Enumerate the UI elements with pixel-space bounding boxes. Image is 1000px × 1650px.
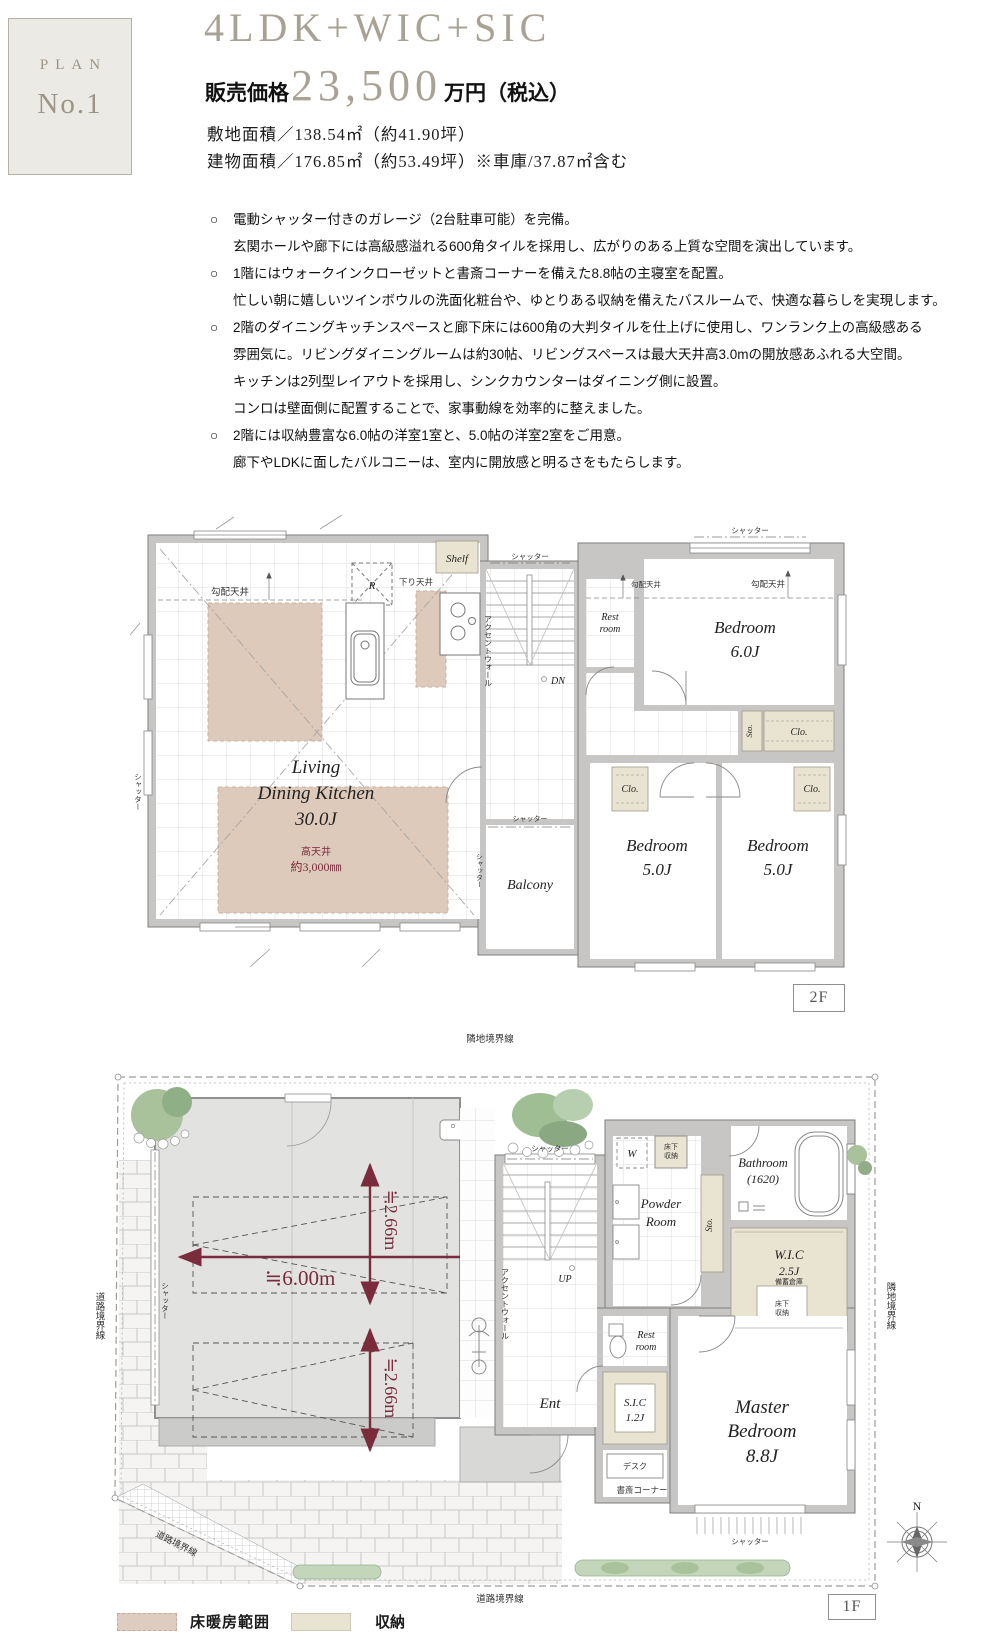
entrance-label: Ent: [539, 1396, 562, 1412]
closet-label: Clo.: [622, 784, 639, 795]
living-label-2: Dining Kitchen: [257, 783, 375, 804]
compass-icon: [887, 1512, 947, 1572]
feature-line: キッチンは2列型レイアウトを採用し、シンクカウンターはダイニング側に設置。: [210, 368, 950, 395]
bedroom5-right-label: Bedroom: [747, 836, 809, 855]
bullet-icon: ○: [210, 422, 233, 449]
bullet-icon: ○: [210, 260, 233, 287]
sic-label-2: 1.2J: [626, 1412, 646, 1424]
floor-plan-2f: 勾配天井 Shelf R 下り天井 シャッター シャッター シャッター シャッタ…: [130, 515, 850, 985]
feature-text: 忙しい朝に嬉しいツインボウルの洗面化粧台や、ゆとりある収納を備えたバスルームで、…: [233, 293, 946, 308]
restroom-label-2: room: [600, 624, 621, 635]
price-label: 販売価格: [205, 77, 289, 107]
underfloor-storage-label: 床下: [664, 1142, 678, 1151]
washer-label: W: [627, 1148, 637, 1160]
shutter-label-stair: シャッター: [531, 1144, 569, 1153]
feature-text: 2階には収納豊富な6.0帖の洋室1室と、5.0帖の洋室2室をご用意。: [233, 428, 630, 443]
restroom-label-1f-1: Rest: [636, 1330, 654, 1341]
plan-sheet: PLAN No.1 4LDK+WIC+SIC 販売価格 23,500 万円（税込…: [0, 0, 1000, 1650]
storage-swatch: [291, 1613, 351, 1631]
feature-list: ○電動シャッター付きのガレージ（2台駐車可能）を完備。 玄関ホールや廊下には高級…: [210, 206, 950, 476]
boundary-label-bottom: 道路境界線: [476, 1593, 524, 1605]
feature-text: 雰囲気に。リビングダイニングルームは約30帖、リビングスペースは最大天井高3.0…: [233, 347, 911, 362]
living-size-label: 30.0J: [294, 809, 338, 830]
high-ceiling-label-1: 高天井: [301, 845, 331, 858]
bathroom-label-2: (1620): [747, 1172, 779, 1186]
desk-label: デスク: [623, 1461, 647, 1471]
feature-line: ○1階にはウォークインクローゼットと書斎コーナーを備えた8.8帖の主寝室を配置。: [210, 260, 950, 287]
feature-line: 忙しい朝に嬉しいツインボウルの洗面化粧台や、ゆとりある収納を備えたバスルームで、…: [210, 287, 950, 314]
building-area: 建物面積／176.85㎡（約53.49坪）※車庫/37.87㎡含む: [207, 148, 628, 172]
feature-text: キッチンは2列型レイアウトを採用し、シンクカウンターはダイニング側に設置。: [233, 374, 727, 389]
high-ceiling-label-2: 約3,000㎜: [290, 859, 341, 874]
master-size-label: 8.8J: [746, 1446, 780, 1467]
lowered-ceiling-label: 下り天井: [399, 577, 433, 587]
slope-ceiling-label-ldk: 勾配天井: [211, 586, 249, 598]
price-value: 23,500: [291, 60, 442, 111]
paving-bottom: [207, 1480, 562, 1584]
up-label: UP: [558, 1274, 571, 1285]
floor-tag-1f: 1F: [828, 1594, 876, 1620]
dim-depth-label: ≒2.66m: [381, 1190, 401, 1251]
bedroom6-label: Bedroom: [714, 618, 776, 637]
bullet-icon: ○: [210, 206, 233, 233]
master-label-1: Master: [734, 1397, 789, 1418]
feature-line: コンロは壁面側に配置することで、家事動線を効率的に整えました。: [210, 395, 950, 422]
plan-label: PLAN: [9, 57, 131, 74]
price-unit: 万円（税込）: [444, 77, 570, 107]
floor-heating-swatch: [117, 1613, 177, 1631]
bedroom5-left-label: Bedroom: [626, 836, 688, 855]
living-label-1: Living: [291, 757, 341, 778]
price-row: 販売価格 23,500 万円（税込）: [205, 60, 570, 111]
closet-label: Clo.: [804, 784, 821, 795]
fridge-label: R: [368, 580, 376, 592]
floor-plan-1f: ≒6.00m ≒2.66m ≒2.66m: [95, 1020, 955, 1620]
master-label-2: Bedroom: [728, 1421, 797, 1442]
storage-label: Sto.: [744, 725, 754, 738]
feature-text: コンロは壁面側に配置することで、家事動線を効率的に整えました。: [233, 401, 651, 416]
shutter-label: シャッター: [511, 552, 549, 561]
legend: 床暖房範囲 収納: [117, 1611, 405, 1632]
page-title: 4LDK+WIC+SIC: [204, 4, 551, 51]
shutter-label: シャッター: [134, 773, 143, 811]
sic-label-1: S.I.C: [624, 1397, 647, 1409]
stockpile-label: 備蓄倉庫: [775, 1277, 803, 1286]
feature-line: 雰囲気に。リビングダイニングルームは約30帖、リビングスペースは最大天井高3.0…: [210, 341, 950, 368]
boundary-label-right: 隣地境界線: [885, 1281, 897, 1329]
bullet-icon: ○: [210, 314, 233, 341]
shutter-label: シャッター: [476, 853, 484, 888]
north-label: N: [913, 1499, 922, 1513]
boundary-label-top: 隣地境界線: [466, 1033, 514, 1045]
dim-width-label: ≒6.00m: [265, 1266, 336, 1290]
feature-text: 電動シャッター付きのガレージ（2台駐車可能）を完備。: [233, 212, 578, 227]
wic-label-1: W.I.C: [774, 1247, 803, 1262]
wic-label-2: 2.5J: [779, 1264, 800, 1278]
underfloor-storage-wic: 床下: [775, 1299, 789, 1308]
restroom-label-1f-2: room: [636, 1342, 657, 1353]
land-area: 敷地面積／138.54㎡（約41.90坪）: [207, 121, 476, 145]
side-path: [460, 1108, 495, 1418]
powder-label-2: Room: [645, 1214, 676, 1229]
feature-line: ○2階のダイニングキッチンスペースと廊下床には600角の大判タイルを仕上げに使用…: [210, 314, 950, 341]
deck-lines: [697, 1517, 801, 1534]
shutter-label-master: シャッター: [731, 1537, 769, 1546]
shutter-label: シャッター: [731, 526, 769, 535]
dim-depth-label: ≒2.66m: [381, 1358, 401, 1419]
slope-ceiling-label-rest: 勾配天井: [631, 579, 661, 589]
feature-line: ○2階には収納豊富な6.0帖の洋室1室と、5.0帖の洋室2室をご用意。: [210, 422, 950, 449]
floor-tag-2f: 2F: [793, 984, 845, 1012]
closet-label: Clo.: [791, 727, 808, 738]
study-corner-label: 書斎コーナー: [616, 1485, 667, 1495]
accent-wall-label-1f: アクセントウォール: [501, 1268, 510, 1340]
plan-number-box: PLAN No.1: [8, 18, 132, 175]
shutter-label-garage: シャッター: [161, 1282, 170, 1320]
shelf-label: Shelf: [446, 553, 470, 565]
storage-label-1f: Sto.: [704, 1218, 714, 1232]
accent-wall-label-2f: アクセントウォール: [484, 615, 493, 687]
feature-text: 玄関ホールや廊下には高級感溢れる600角タイルを採用し、広がりのある上質な空間を…: [233, 239, 861, 254]
slope-ceiling-label-bed6: 勾配天井: [751, 579, 785, 589]
down-label: DN: [550, 676, 566, 687]
floor-heating-label: 床暖房範囲: [190, 1611, 270, 1632]
restroom-label-1: Rest: [600, 612, 618, 623]
feature-line: 廊下やLDKに面したバルコニーは、室内に開放感と明るさをもたらします。: [210, 449, 950, 476]
powder-label-1: Powder: [640, 1196, 682, 1211]
bedroom5-right-size: 5.0J: [764, 860, 794, 879]
feature-text: 廊下やLDKに面したバルコニーは、室内に開放感と明るさをもたらします。: [233, 455, 690, 470]
storage-label: 収納: [375, 1611, 405, 1632]
underfloor-storage-label: 収納: [664, 1151, 678, 1160]
feature-text: 1階にはウォークインクローゼットと書斎コーナーを備えた8.8帖の主寝室を配置。: [233, 266, 732, 281]
plan-number: No.1: [9, 88, 131, 121]
bedroom5-left-size: 5.0J: [643, 860, 673, 879]
shutter-label: シャッター: [513, 814, 548, 823]
feature-line: 玄関ホールや廊下には高級感溢れる600角タイルを採用し、広がりのある上質な空間を…: [210, 233, 950, 260]
bathroom-label-1: Bathroom: [738, 1156, 788, 1170]
bedroom6-size: 6.0J: [731, 642, 761, 661]
underfloor-storage-wic: 収納: [775, 1308, 789, 1317]
feature-text: 2階のダイニングキッチンスペースと廊下床には600角の大判タイルを仕上げに使用し…: [233, 320, 923, 335]
balcony-label: Balcony: [507, 878, 554, 893]
feature-line: ○電動シャッター付きのガレージ（2台駐車可能）を完備。: [210, 206, 950, 233]
boundary-label-left: 道路境界線: [95, 1291, 105, 1339]
